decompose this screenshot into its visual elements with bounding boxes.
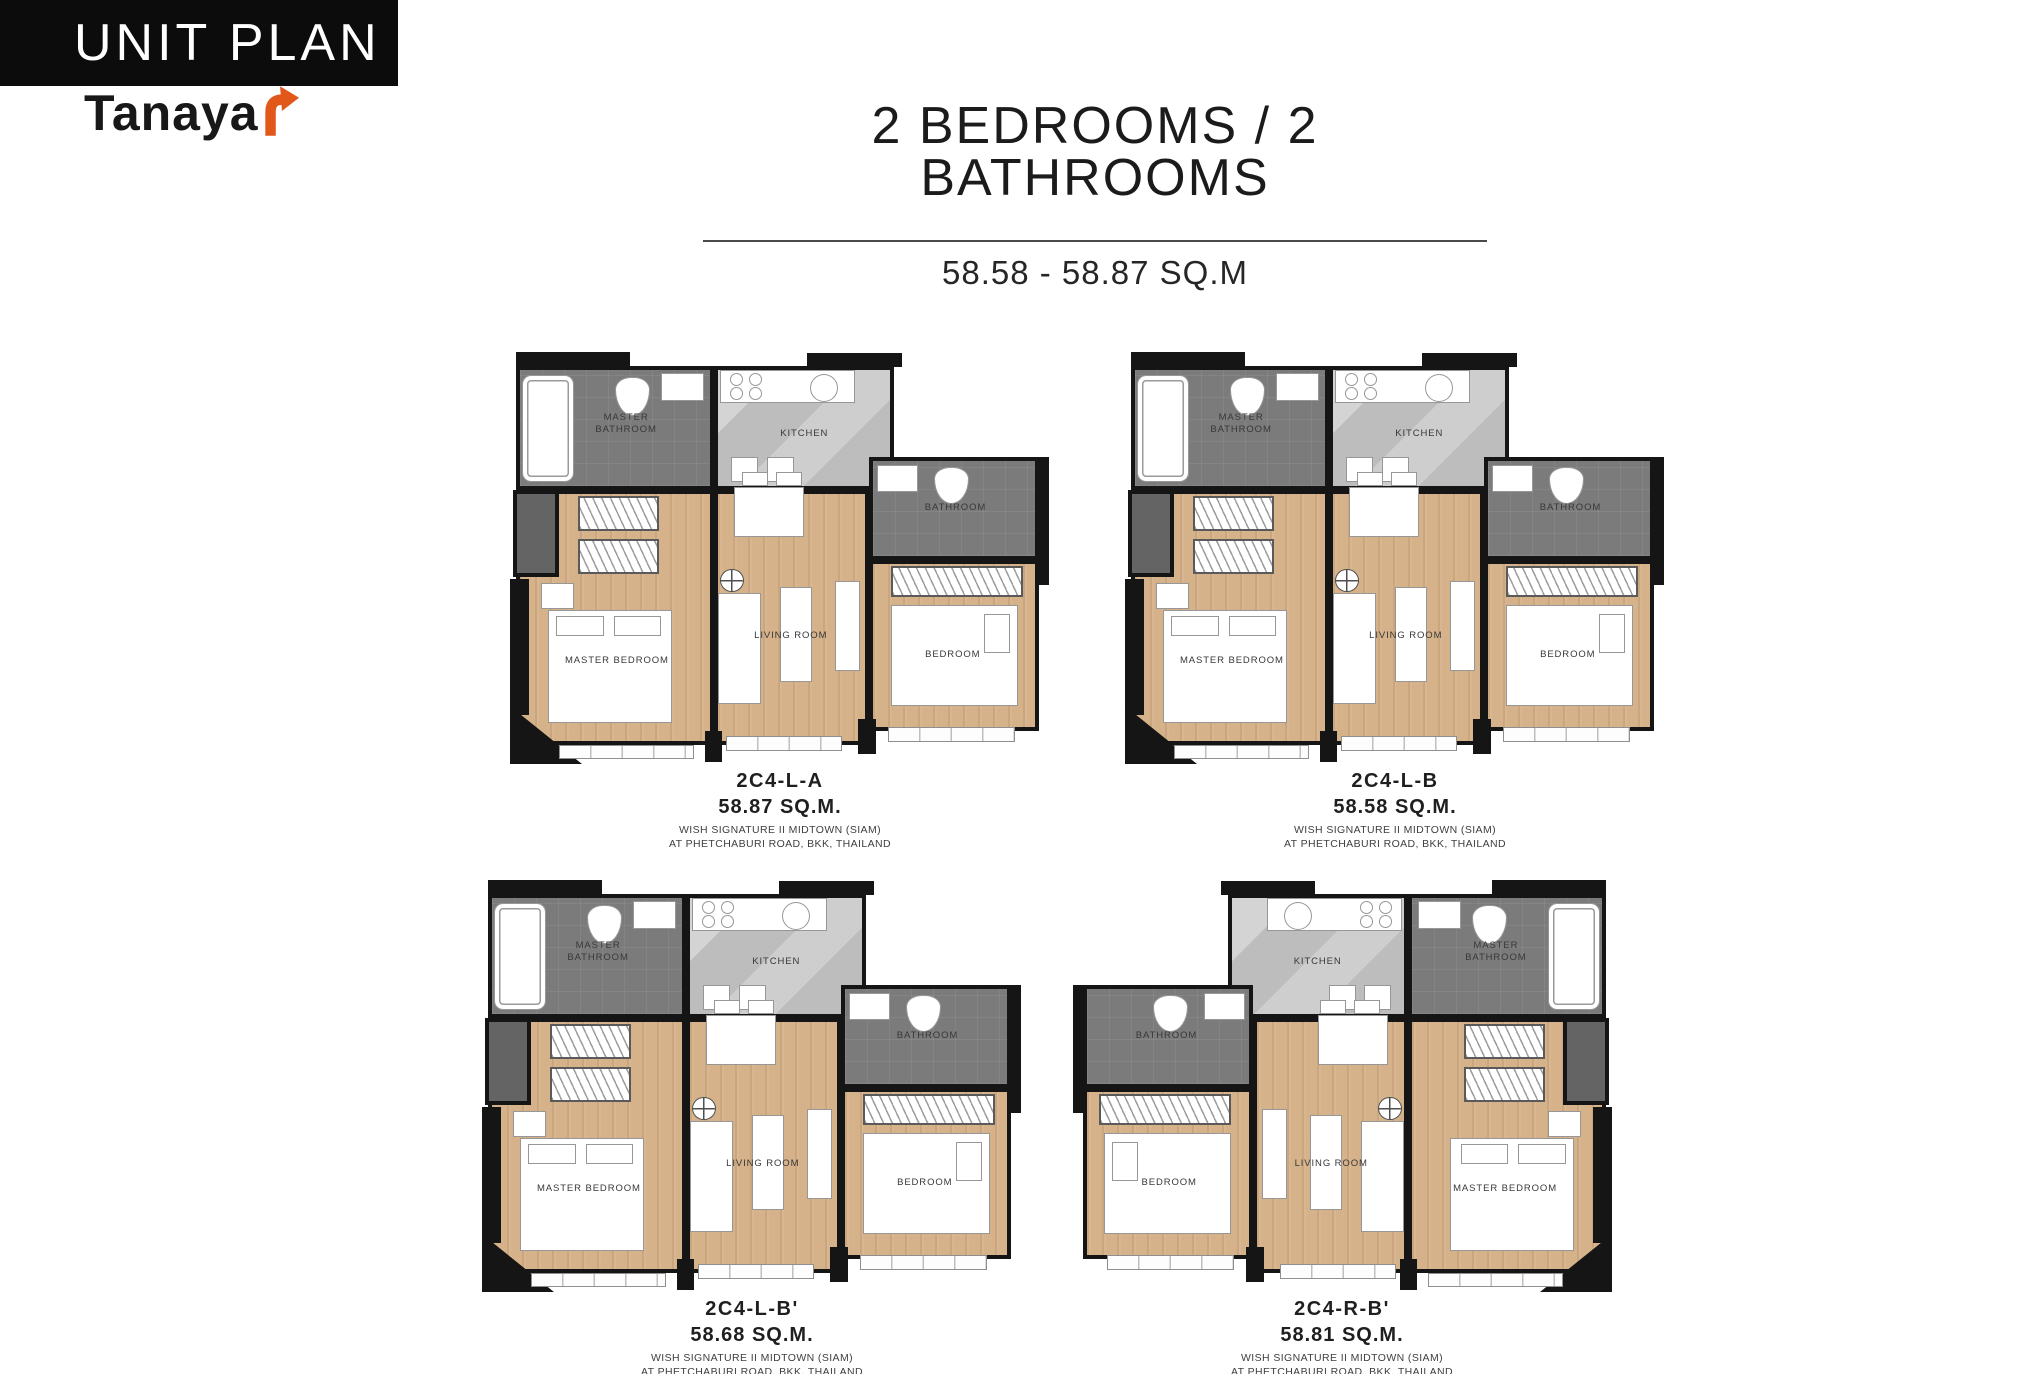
stove-burner-icon <box>749 387 762 400</box>
kitchen-sink-icon <box>1425 374 1453 402</box>
balcony-rail <box>531 1273 666 1288</box>
tv-cabinet <box>1262 1109 1287 1200</box>
bathtub-icon <box>494 903 545 1010</box>
dining-chair <box>1391 472 1417 486</box>
sink-icon <box>633 901 676 930</box>
label-bedroom: BEDROOM <box>1121 1177 1218 1189</box>
wall-segment <box>1125 579 1144 715</box>
sink-icon <box>877 465 918 492</box>
pillow <box>528 1144 576 1165</box>
label-bedroom: BEDROOM <box>876 1177 973 1189</box>
wall-segment <box>1007 985 1021 1113</box>
wall-segment <box>807 353 902 367</box>
pillow <box>556 616 604 637</box>
utility-shaft <box>513 490 559 577</box>
utility-shaft <box>1128 490 1174 577</box>
pillow <box>586 1144 634 1165</box>
wall-segment <box>779 881 874 895</box>
stove-burner-icon <box>721 915 734 928</box>
utility-shaft <box>1563 1018 1609 1105</box>
unit-2c4-l-b: MASTER BATHROOMKITCHENBATHROOMMASTER BED… <box>1115 352 1675 851</box>
wardrobe <box>550 1067 631 1102</box>
floor-plan-2c4-r-b-prime: MASTER BATHROOMKITCHENBATHROOMMASTER BED… <box>1072 880 1612 1292</box>
floor-plan-2c4-l-b: MASTER BATHROOMKITCHENBATHROOMMASTER BED… <box>1125 352 1665 764</box>
project-line-2: AT PHETCHABURI ROAD, BKK, THAILAND <box>1115 838 1675 852</box>
dining-chair <box>748 1000 774 1014</box>
wardrobe <box>1506 566 1638 597</box>
wall-segment <box>1650 457 1664 585</box>
brand-logo: Tanaya <box>84 88 300 138</box>
wall-segment <box>705 731 721 762</box>
pillow <box>1229 616 1277 637</box>
wardrobe <box>578 496 659 531</box>
project-line-1: WISH SIGNATURE II MIDTOWN (SIAM) <box>1062 1352 1622 1366</box>
wall-segment <box>482 1107 501 1243</box>
brand-name: Tanaya <box>84 88 259 138</box>
unit-caption: 2C4-R-B' 58.81 SQ.M. WISH SIGNATURE II M… <box>1062 1298 1622 1374</box>
project-name: WISH SIGNATURE II MIDTOWN (SIAM) AT PHET… <box>472 1352 1032 1374</box>
dining-chair <box>1320 1000 1346 1014</box>
dining-table <box>1318 1015 1388 1065</box>
balcony-rail <box>726 736 842 751</box>
sofa <box>690 1121 732 1232</box>
wall-segment <box>830 1247 847 1282</box>
utility-shaft <box>485 1018 531 1105</box>
label-master-bathroom: MASTER BATHROOM <box>544 940 652 965</box>
sink-icon <box>661 373 704 402</box>
pillow <box>984 614 1010 653</box>
wall-segment <box>858 719 875 754</box>
label-master-bedroom: MASTER BEDROOM <box>563 655 671 667</box>
side-table <box>1156 583 1188 610</box>
unit-plan-page: UNIT PLAN Tanaya 2 BEDROOMS / 2 BATHROOM… <box>0 0 2033 1374</box>
stove-burner-icon <box>749 373 762 386</box>
sink-icon <box>849 993 890 1020</box>
project-line-2: AT PHETCHABURI ROAD, BKK, THAILAND <box>1062 1366 1622 1374</box>
label-bathroom: BATHROOM <box>902 502 1010 514</box>
wall-segment <box>1131 352 1244 368</box>
dining-table <box>706 1015 776 1065</box>
stove-burner-icon <box>1379 901 1392 914</box>
label-kitchen: KITCHEN <box>1376 428 1462 440</box>
project-name: WISH SIGNATURE II MIDTOWN (SIAM) AT PHET… <box>500 824 1060 851</box>
unit-2c4-r-b-prime: MASTER BATHROOMKITCHENBATHROOMMASTER BED… <box>1062 880 1622 1374</box>
wall-segment <box>1492 880 1605 896</box>
pillow <box>1461 1144 1509 1165</box>
tv-cabinet <box>835 581 860 672</box>
sink-icon <box>1492 465 1533 492</box>
project-name: WISH SIGNATURE II MIDTOWN (SIAM) AT PHET… <box>1062 1352 1622 1374</box>
side-table <box>513 1111 545 1138</box>
wall-segment <box>1246 1247 1263 1282</box>
pillow <box>614 616 662 637</box>
wall-segment <box>1035 457 1049 585</box>
label-kitchen: KITCHEN <box>733 956 819 968</box>
kitchen-sink-icon <box>810 374 838 402</box>
unit-caption: 2C4-L-B' 58.68 SQ.M. WISH SIGNATURE II M… <box>472 1298 1032 1374</box>
unit-2c4-l-b-prime: MASTER BATHROOMKITCHENBATHROOMMASTER BED… <box>472 880 1032 1374</box>
sink-icon <box>1276 373 1319 402</box>
label-living-room: LIVING ROOM <box>1272 1158 1391 1170</box>
wall-segment <box>488 880 601 896</box>
sofa <box>1361 1121 1403 1232</box>
project-line-2: AT PHETCHABURI ROAD, BKK, THAILAND <box>500 838 1060 852</box>
label-bathroom: BATHROOM <box>1113 1030 1221 1042</box>
project-name: WISH SIGNATURE II MIDTOWN (SIAM) AT PHET… <box>1115 824 1675 851</box>
sofa <box>718 593 760 704</box>
side-table <box>541 583 573 610</box>
balcony-rail <box>888 727 1015 742</box>
wall-segment <box>1221 881 1316 895</box>
unit-2c4-l-a: MASTER BATHROOMKITCHENBATHROOMMASTER BED… <box>500 352 1060 851</box>
stove-burner-icon <box>721 901 734 914</box>
pillow <box>956 1142 982 1181</box>
project-line-1: WISH SIGNATURE II MIDTOWN (SIAM) <box>472 1352 1032 1366</box>
sofa <box>1333 593 1375 704</box>
label-master-bathroom: MASTER BATHROOM <box>1187 412 1295 437</box>
wall-segment <box>1593 1107 1612 1243</box>
brand-arrow-icon <box>262 86 300 136</box>
project-line-2: AT PHETCHABURI ROAD, BKK, THAILAND <box>472 1366 1032 1374</box>
pillow <box>1599 614 1625 653</box>
ceiling-fan-icon <box>1378 1097 1402 1120</box>
wall-segment <box>1473 719 1490 754</box>
dining-chair <box>1357 472 1383 486</box>
label-bedroom: BEDROOM <box>1519 649 1616 661</box>
bathtub-icon <box>1548 903 1599 1010</box>
unit-caption: 2C4-L-B 58.58 SQ.M. WISH SIGNATURE II MI… <box>1115 770 1675 851</box>
balcony-rail <box>1280 1264 1396 1279</box>
unit-caption: 2C4-L-A 58.87 SQ.M. WISH SIGNATURE II MI… <box>500 770 1060 851</box>
bathtub-icon <box>1137 375 1188 482</box>
wardrobe <box>1193 539 1274 574</box>
wardrobe <box>1099 1094 1231 1125</box>
sink-icon <box>1204 993 1245 1020</box>
side-table <box>1548 1111 1580 1138</box>
area-range: 58.58 - 58.87 SQ.M <box>700 256 1490 289</box>
dining-chair <box>714 1000 740 1014</box>
label-master-bedroom: MASTER BEDROOM <box>1178 655 1286 667</box>
wall-segment <box>1320 731 1336 762</box>
wall-segment <box>516 352 629 368</box>
label-master-bathroom: MASTER BATHROOM <box>572 412 680 437</box>
wall-segment <box>677 1259 693 1290</box>
label-living-room: LIVING ROOM <box>1346 630 1465 642</box>
unit-code: 2C4-L-A <box>500 770 1060 792</box>
bathtub-icon <box>522 375 573 482</box>
label-master-bathroom: MASTER BATHROOM <box>1442 940 1550 965</box>
balcony-rail <box>559 745 694 760</box>
title-divider <box>703 240 1487 242</box>
wall-segment <box>1400 1259 1416 1290</box>
ceiling-fan-icon <box>720 569 744 592</box>
balcony-rail <box>1428 1273 1563 1288</box>
stove-burner-icon <box>1364 373 1377 386</box>
unit-area: 58.81 SQ.M. <box>1062 1324 1622 1346</box>
wardrobe <box>550 1024 631 1059</box>
stove-burner-icon <box>1364 387 1377 400</box>
dining-chair <box>1354 1000 1380 1014</box>
wardrobe <box>891 566 1023 597</box>
floor-plan-2c4-l-b-prime: MASTER BATHROOMKITCHENBATHROOMMASTER BED… <box>482 880 1022 1292</box>
project-line-1: WISH SIGNATURE II MIDTOWN (SIAM) <box>1115 824 1675 838</box>
label-bathroom: BATHROOM <box>874 1030 982 1042</box>
balcony-rail <box>1341 736 1457 751</box>
balcony-rail <box>860 1255 987 1270</box>
dining-table <box>1349 487 1419 537</box>
wall-segment <box>1422 353 1517 367</box>
label-living-room: LIVING ROOM <box>703 1158 822 1170</box>
ceiling-fan-icon <box>692 1097 716 1120</box>
unit-code: 2C4-L-B' <box>472 1298 1032 1320</box>
page-title: 2 BEDROOMS / 2 BATHROOMS <box>700 100 1490 204</box>
label-kitchen: KITCHEN <box>1275 956 1361 968</box>
unit-code: 2C4-R-B' <box>1062 1298 1622 1320</box>
wall-segment <box>1073 985 1087 1113</box>
sink-icon <box>1418 901 1461 930</box>
kitchen-sink-icon <box>1284 902 1312 930</box>
wardrobe <box>863 1094 995 1125</box>
pillow <box>1112 1142 1138 1181</box>
pillow <box>1171 616 1219 637</box>
label-bathroom: BATHROOM <box>1517 502 1625 514</box>
wardrobe <box>1193 496 1274 531</box>
tv-cabinet <box>807 1109 832 1200</box>
pillow <box>1518 1144 1566 1165</box>
label-bedroom: BEDROOM <box>904 649 1001 661</box>
balcony-rail <box>1107 1255 1234 1270</box>
dining-chair <box>742 472 768 486</box>
dining-table <box>734 487 804 537</box>
label-master-bedroom: MASTER BEDROOM <box>535 1183 643 1195</box>
balcony-rail <box>1174 745 1309 760</box>
unit-area: 58.87 SQ.M. <box>500 796 1060 818</box>
stove-burner-icon <box>1379 915 1392 928</box>
wardrobe <box>578 539 659 574</box>
label-master-bedroom: MASTER BEDROOM <box>1451 1183 1559 1195</box>
balcony-rail <box>1503 727 1630 742</box>
unit-area: 58.68 SQ.M. <box>472 1324 1032 1346</box>
wardrobe <box>1464 1024 1545 1059</box>
dining-chair <box>776 472 802 486</box>
floor-plan-2c4-l-a: MASTER BATHROOMKITCHENBATHROOMMASTER BED… <box>510 352 1050 764</box>
balcony-rail <box>698 1264 814 1279</box>
label-kitchen: KITCHEN <box>761 428 847 440</box>
page-header: 2 BEDROOMS / 2 BATHROOMS 58.58 - 58.87 S… <box>700 100 1490 289</box>
tv-cabinet <box>1450 581 1475 672</box>
unit-plan-banner: UNIT PLAN <box>0 0 398 86</box>
ceiling-fan-icon <box>1335 569 1359 592</box>
unit-area: 58.58 SQ.M. <box>1115 796 1675 818</box>
label-living-room: LIVING ROOM <box>731 630 850 642</box>
unit-code: 2C4-L-B <box>1115 770 1675 792</box>
wardrobe <box>1464 1067 1545 1102</box>
banner-title: UNIT PLAN <box>74 13 381 73</box>
project-line-1: WISH SIGNATURE II MIDTOWN (SIAM) <box>500 824 1060 838</box>
wall-segment <box>510 579 529 715</box>
kitchen-sink-icon <box>782 902 810 930</box>
